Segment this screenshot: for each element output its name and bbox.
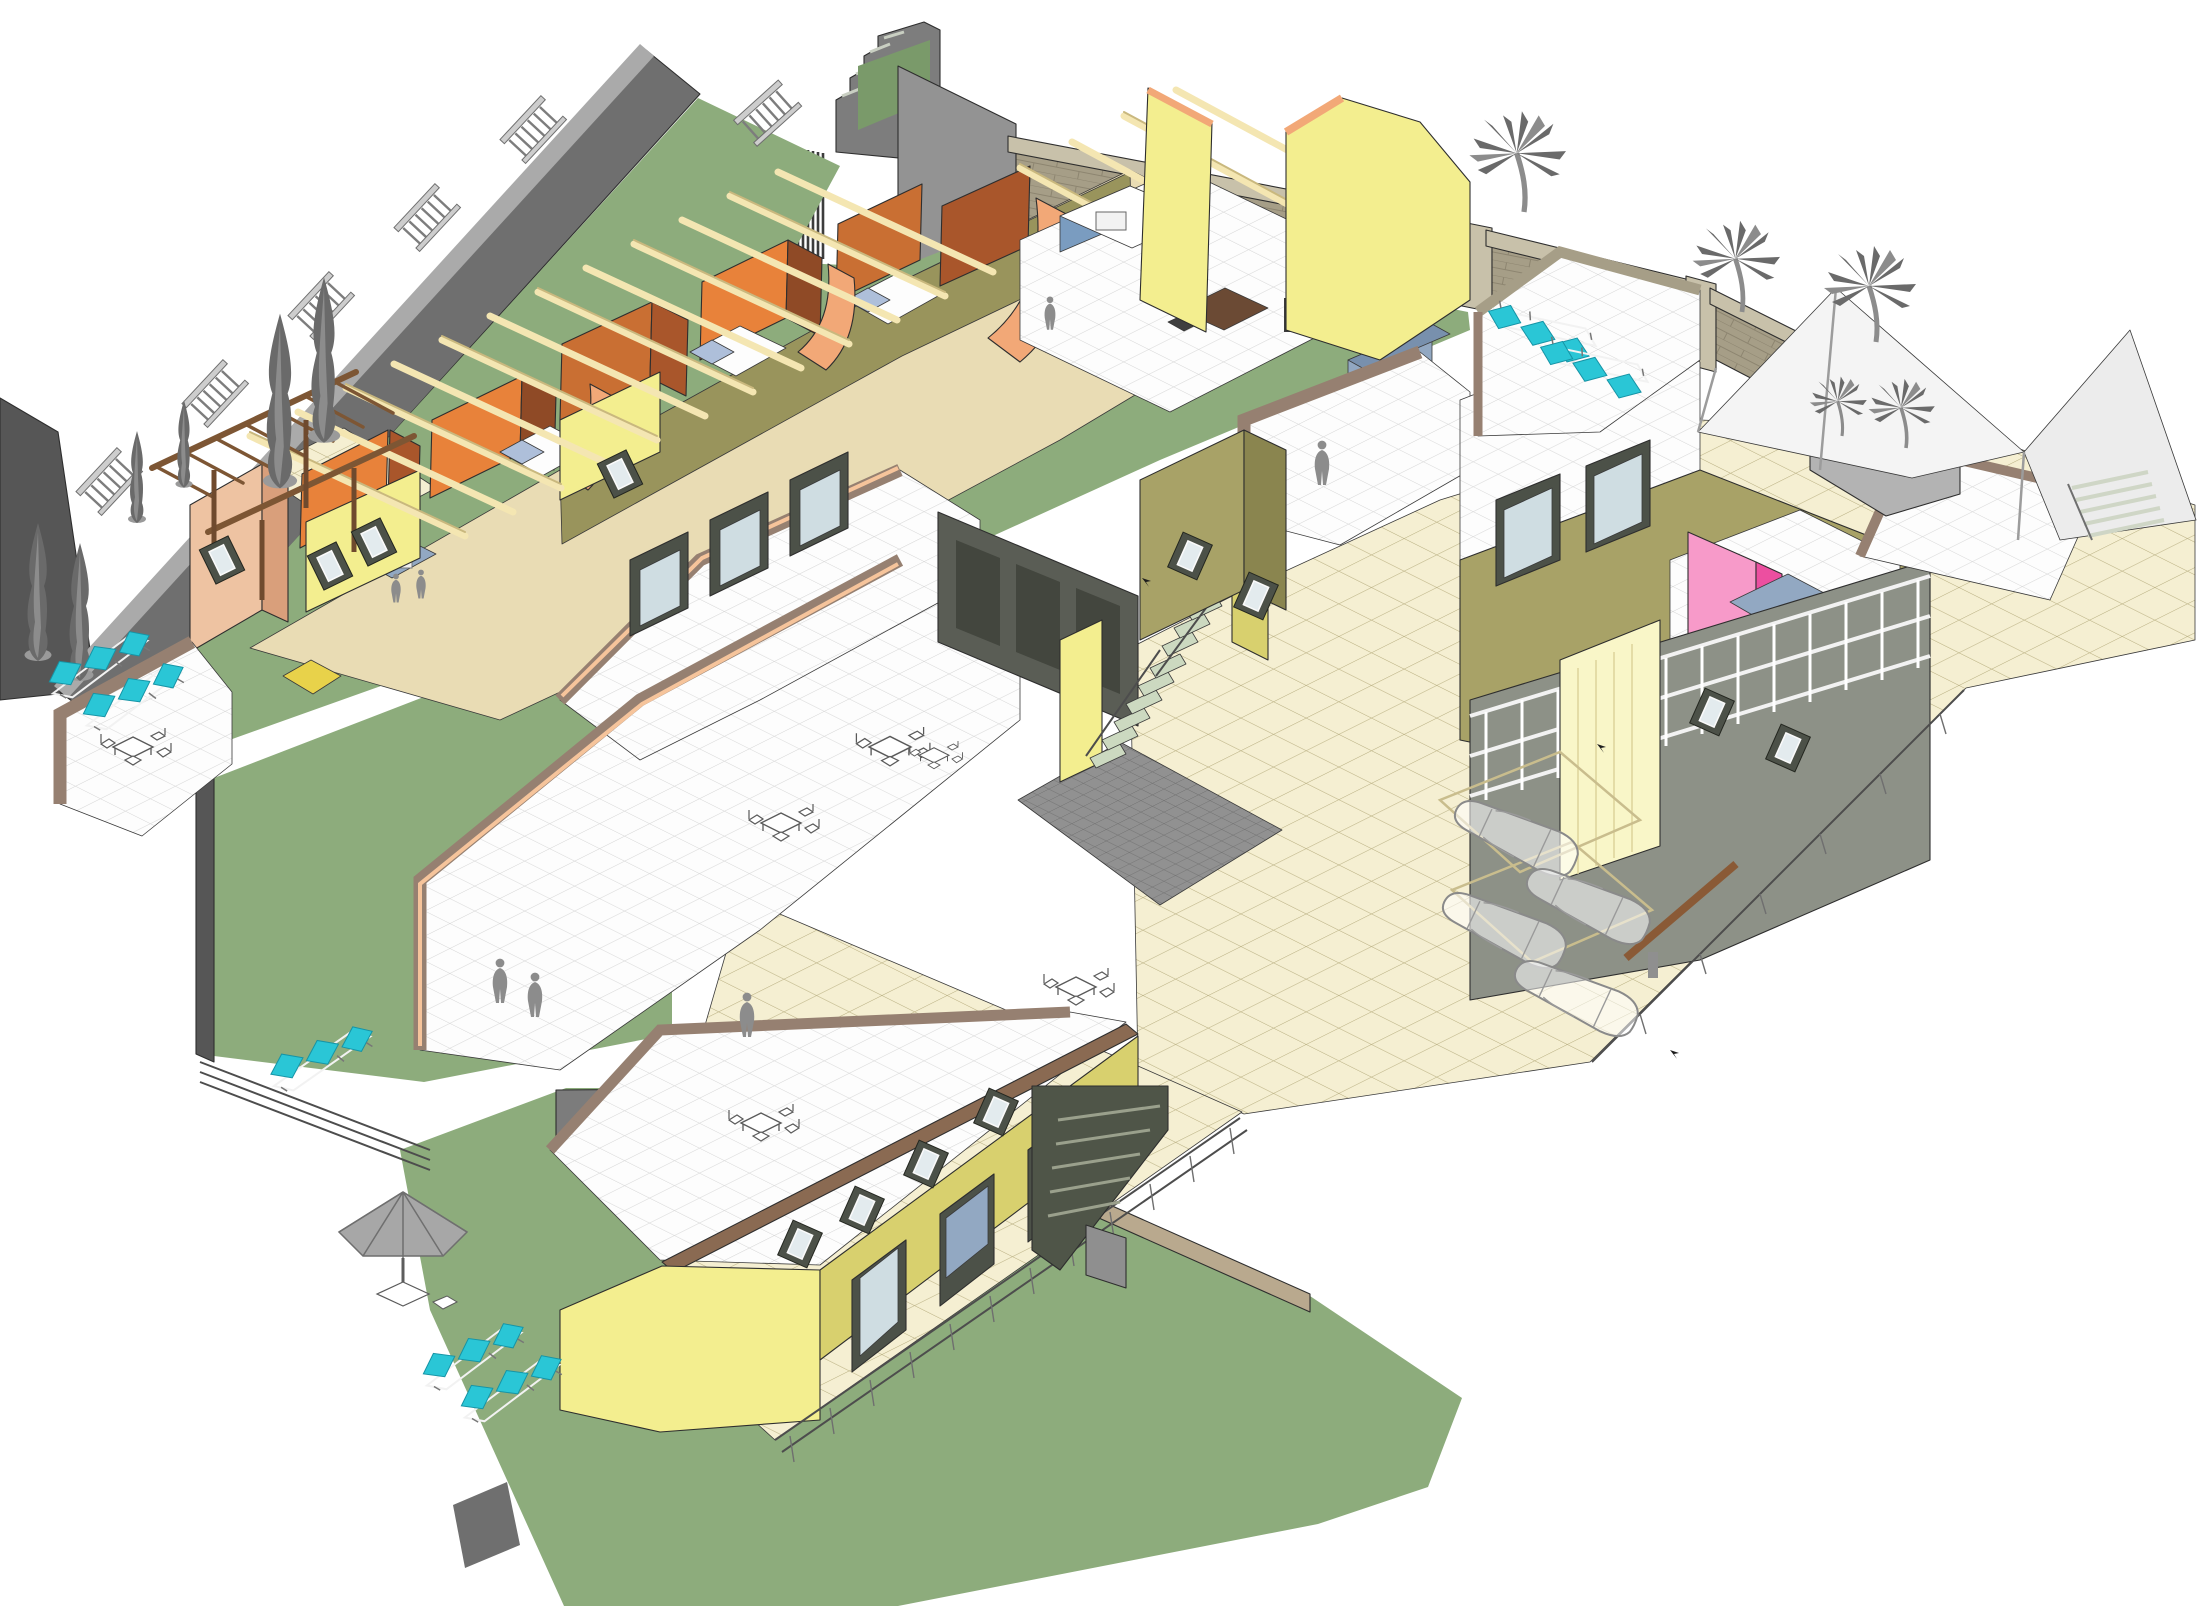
stove — [1096, 212, 1126, 230]
retaining-wall-left — [196, 752, 214, 1062]
post — [1648, 952, 1658, 978]
3d-architectural-cutaway-view — [0, 0, 2200, 1624]
gable-wall-yellow — [1140, 88, 1212, 332]
yellow-tower — [1560, 620, 1660, 880]
model-viewport — [0, 0, 2200, 1624]
